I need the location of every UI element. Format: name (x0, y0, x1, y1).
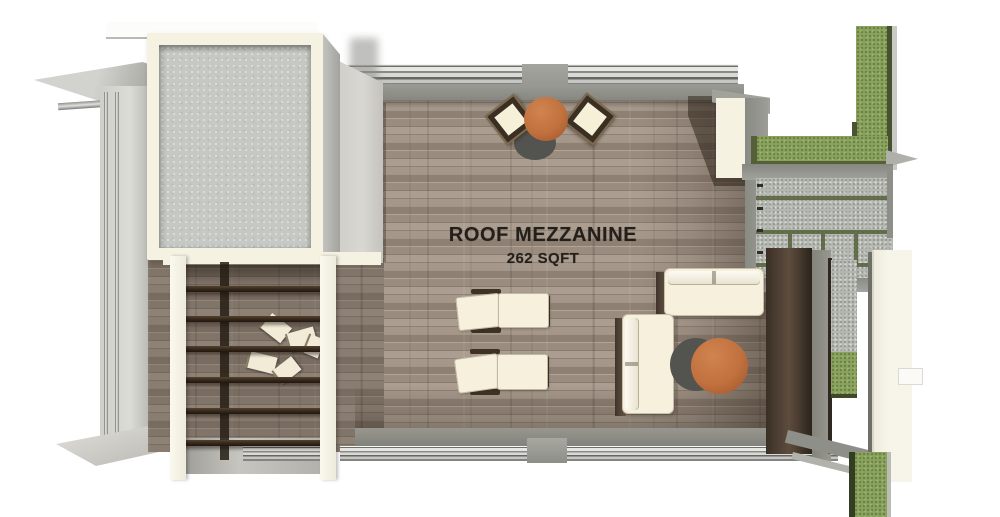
sun-lounger (457, 289, 551, 333)
pergola-slat (177, 377, 334, 383)
lounger-back-cushion (454, 353, 502, 394)
paver-joint (756, 196, 893, 200)
sun-lounger (456, 349, 550, 395)
edge-tick (757, 251, 763, 254)
white-wall-panel (872, 250, 912, 482)
floor-plan-render: ROOF MEZZANINE 262 SQFT (0, 0, 1000, 517)
left-wall-rail (104, 92, 108, 448)
pergola-slat (177, 440, 334, 446)
sofa-long (664, 268, 764, 316)
deck-bottom-parapet (355, 428, 792, 446)
glass-railing-top-right (568, 64, 738, 86)
lounger-back-cushion (455, 293, 502, 331)
bistro-table (524, 97, 568, 141)
lounger-seat-cushion (497, 354, 548, 390)
lounger-seat-cushion (498, 293, 549, 328)
edge-tick (757, 184, 763, 187)
lower-grass-edge (831, 394, 857, 398)
skylight-concrete-roof (159, 45, 311, 248)
pergola-slat (177, 346, 334, 352)
lower-grass-patch (831, 352, 857, 398)
west-wall (337, 56, 383, 263)
glass-railing-bottom-mid (340, 446, 527, 461)
grass-strip-edge (849, 452, 855, 517)
railing-post-bottom (527, 438, 567, 463)
edge-tick (757, 229, 763, 232)
green-outer-curb (892, 26, 897, 170)
pergola-slat (177, 286, 334, 292)
room-name-label: ROOF MEZZANINE (398, 224, 688, 248)
room-area-label: 262 SQFT (398, 250, 688, 268)
terrace-right-curb (887, 166, 893, 238)
grass-strip-curb (887, 452, 891, 517)
wall-tab (898, 368, 923, 385)
skylight-side-face (323, 34, 340, 262)
glass-railing-bottom-left (243, 446, 327, 461)
lower-gravel-patch (831, 260, 857, 352)
sofa-side (622, 314, 674, 414)
pergola-slat (177, 408, 334, 414)
shadow-wall-wood (766, 248, 812, 454)
pergola-frame-left (170, 256, 186, 480)
pergola-frame-right (320, 256, 336, 480)
edge-tick (757, 207, 763, 210)
left-wall-rail (115, 92, 119, 448)
grass-strip-bottom (854, 452, 888, 517)
pergola-slat (177, 316, 334, 322)
coffee-table (691, 338, 748, 394)
